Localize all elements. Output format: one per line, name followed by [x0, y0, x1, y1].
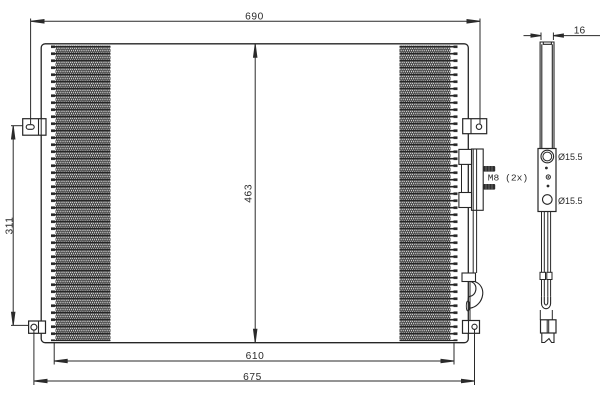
svg-text:463: 463	[244, 184, 255, 203]
svg-text:311: 311	[4, 216, 15, 234]
svg-text:610: 610	[246, 351, 265, 362]
svg-text:Ø15.5: Ø15.5	[558, 196, 583, 206]
svg-text:Ø15.5: Ø15.5	[558, 152, 583, 162]
svg-text:M8 (2x): M8 (2x)	[488, 173, 528, 184]
svg-text:690: 690	[245, 11, 264, 22]
svg-text:675: 675	[243, 372, 262, 383]
svg-text:16: 16	[574, 25, 586, 36]
